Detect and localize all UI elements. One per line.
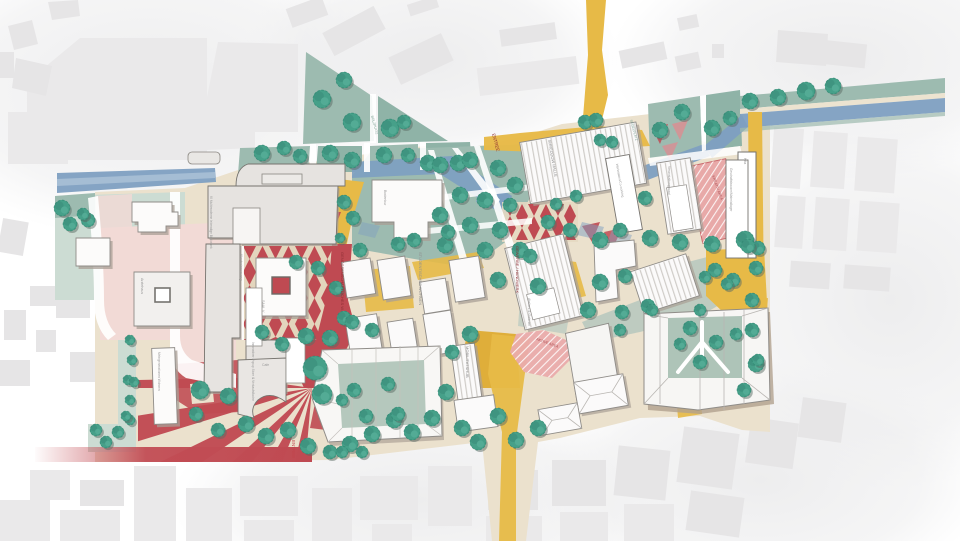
- svg-text:Klosterinnenweg: Klosterinnenweg: [239, 254, 243, 281]
- svg-text:STUDENTISCHES WOHNEN: STUDENTISCHES WOHNEN: [418, 252, 423, 305]
- svg-text:Veranstaltungssaal: Veranstaltungssaal: [667, 166, 671, 195]
- svg-text:Ateliers & Galerien: Ateliers & Galerien: [527, 298, 531, 326]
- svg-text:MOBILITATSHUB: MOBILITATSHUB: [465, 346, 470, 378]
- svg-text:Kita: Kita: [743, 158, 747, 164]
- svg-text:SAAL V: SAAL V: [261, 300, 265, 313]
- svg-text:ENTREE: ENTREE: [291, 440, 296, 458]
- svg-text:GENOSSENSCHAFTLICHES W.: GENOSSENSCHAFTLICHES W.: [340, 252, 345, 311]
- svg-text:Geschaftshauser/Materiallager: Geschaftshauser/Materiallager: [729, 168, 733, 212]
- svg-text:Cafe: Cafe: [262, 363, 269, 367]
- svg-text:Bodenkur: Bodenkur: [383, 190, 387, 206]
- svg-text:Arztehaus: Arztehaus: [140, 278, 144, 294]
- svg-text:Mehrgenerationen Wohnen: Mehrgenerationen Wohnen: [157, 352, 161, 391]
- svg-text:GEWERBE / HANDWERK: GEWERBE / HANDWERK: [515, 246, 520, 293]
- svg-text:Innovativer Popup Store & Verk: Innovativer Popup Store & Verkaufsflache: [251, 342, 255, 401]
- svg-text:VI Multimoderne lebendige Bibl: VI Multimoderne lebendige Bibliothek: [209, 196, 213, 249]
